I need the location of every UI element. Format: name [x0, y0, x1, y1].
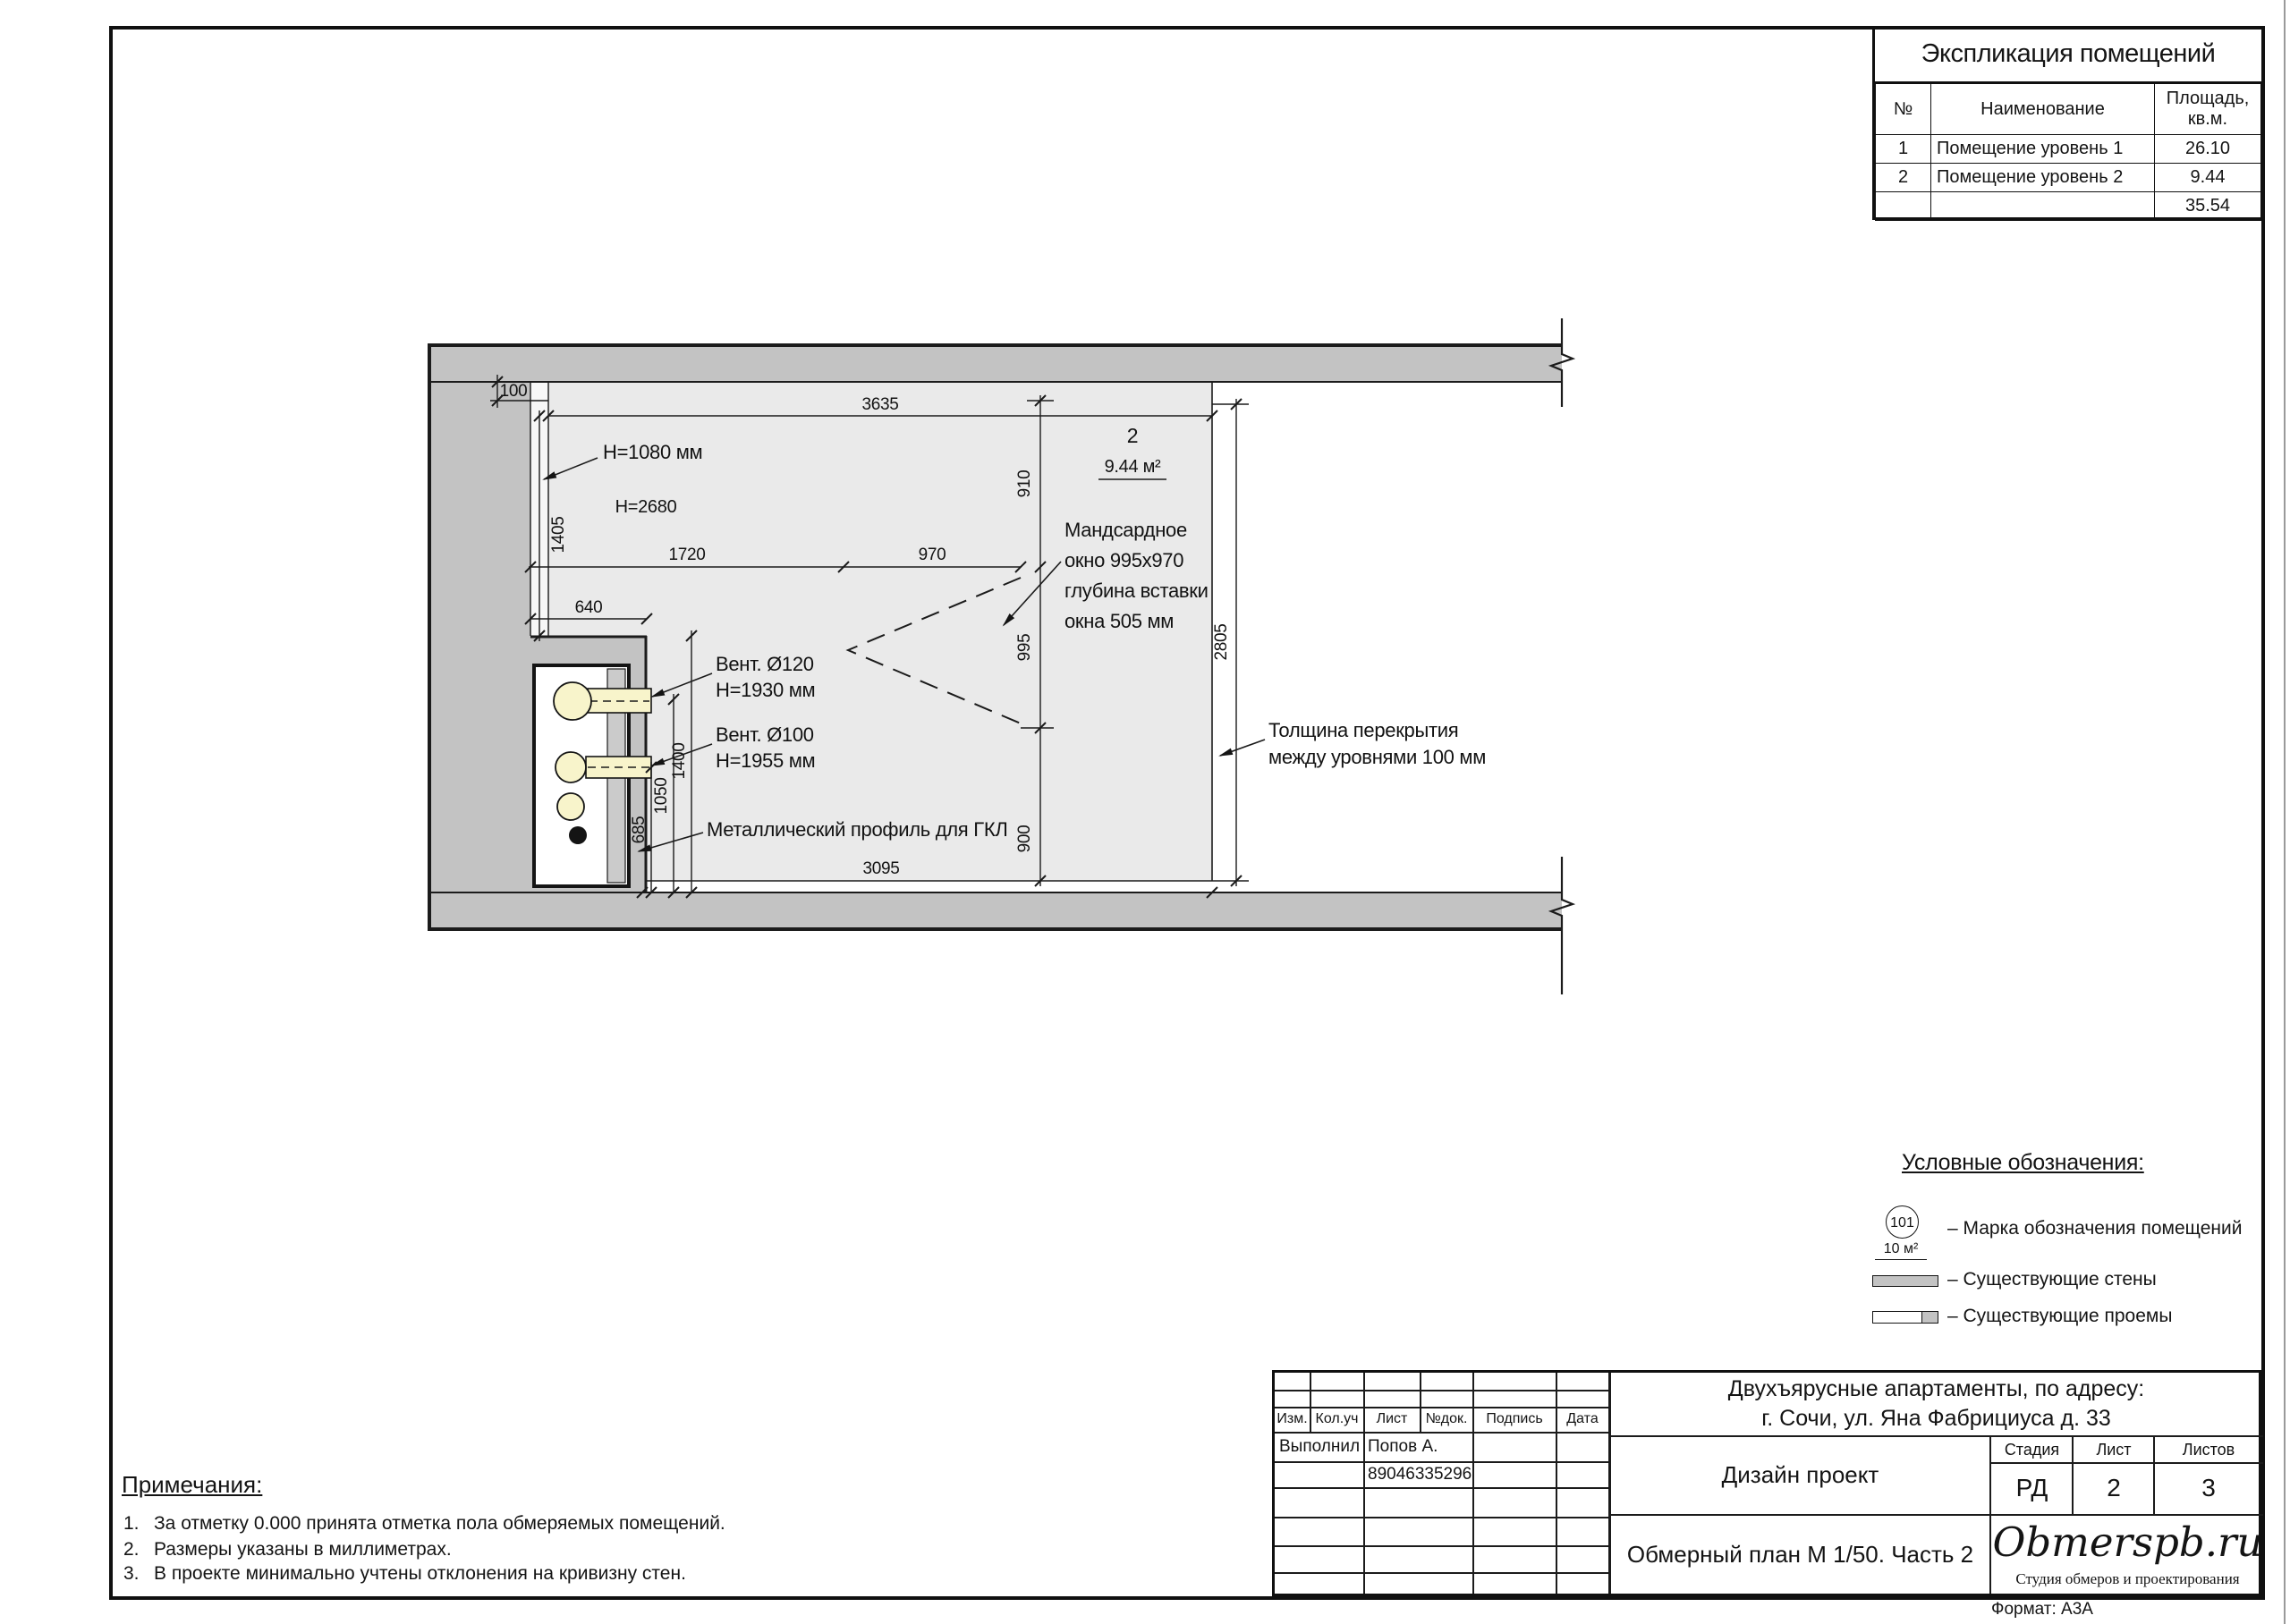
legend-opening-swatch-end [1921, 1312, 1938, 1323]
note-number: 2. [123, 1539, 140, 1561]
legend-item-walls: – Существующие стены [1947, 1269, 2157, 1290]
col-no: № [1876, 84, 1931, 135]
col-area-line2: кв.м. [2188, 109, 2227, 129]
row2-name: Помещение уровень 2 [1931, 164, 2155, 192]
header-izm: Изм. [1275, 1407, 1310, 1432]
header-data: Дата [1556, 1407, 1608, 1432]
room-marker-number: 2 [1127, 424, 1139, 447]
dim-970: 970 [919, 546, 946, 564]
legend-item-marker: – Марка обозначения помещений [1947, 1218, 2242, 1239]
vent-duct-100 [556, 752, 586, 782]
executor-name: Попов А. [1368, 1432, 1472, 1461]
vent-duct-small [557, 793, 584, 820]
role-vypolnil: Выполнил [1279, 1432, 1363, 1461]
label-h1080: H=1080 мм [603, 441, 702, 463]
legend-title: Условные обозначения: [1902, 1150, 2144, 1176]
header-list: Лист [1364, 1407, 1420, 1432]
format-label: Формат: А3А [1991, 1600, 2093, 1620]
slab-label-1: Толщина перекрытия [1268, 719, 1458, 741]
legend-opening-swatch [1872, 1311, 1938, 1324]
wall-left [431, 382, 530, 892]
pipe-riser [569, 826, 587, 844]
dim-995: 995 [1015, 634, 1034, 662]
row2-no: 2 [1876, 164, 1931, 192]
table-row: 1 Помещение уровень 1 26.10 [1876, 135, 2261, 164]
window-label-1: Мандсардное [1064, 519, 1187, 541]
doc-type: Дизайн проект [1611, 1437, 1989, 1512]
dim-910: 910 [1015, 470, 1034, 498]
sheet-value: 2 [2074, 1463, 2153, 1513]
note-item: В проекте минимально учтены отклонения н… [154, 1563, 686, 1585]
col-area: Площадь,кв.м. [2155, 84, 2261, 135]
executor-phone: 89046335296 [1368, 1461, 1472, 1487]
walls [428, 318, 1573, 994]
legend-room-marker-area: 10 м² [1875, 1241, 1927, 1260]
row1-area: 26.10 [2155, 135, 2261, 164]
dim-3095: 3095 [862, 859, 899, 878]
slab-label-2: между уровнями 100 мм [1268, 746, 1486, 768]
notes-title: Примечания: [122, 1471, 262, 1499]
doc-name: Обмерный план М 1/50. Часть 2 [1611, 1517, 1989, 1593]
stage-value: РД [1992, 1463, 2072, 1513]
logo: Obmerspb.ru [1992, 1516, 2263, 1568]
header-podpis: Подпись [1473, 1407, 1556, 1432]
explication-header-row: № Наименование Площадь,кв.м. [1876, 84, 2261, 135]
gkl-profile-label: Металлический профиль для ГКЛ [707, 818, 1007, 841]
window-label-2: окно 995х970 [1064, 549, 1183, 571]
project-address-line2: г. Сочи, ул. Яна Фабрициуса д. 33 [1609, 1404, 2263, 1434]
note-number: 1. [123, 1513, 140, 1535]
vent120-label: Вент. Ø120 [716, 653, 814, 675]
table-row-total: 35.54 [1876, 192, 2261, 221]
row1-name: Помещение уровень 1 [1931, 135, 2155, 164]
sheets-value: 3 [2156, 1463, 2261, 1513]
total-area: 35.54 [2155, 192, 2261, 221]
dim-2805: 2805 [1212, 623, 1231, 660]
dim-685: 685 [630, 816, 649, 844]
dim-900: 900 [1015, 825, 1034, 853]
explication-title: Экспликация помещений [1875, 26, 2261, 83]
header-ndok: №док. [1421, 1407, 1472, 1432]
col-area-line1: Площадь, [2167, 89, 2250, 108]
vent-duct-120 [554, 682, 591, 720]
explication-table: Экспликация помещений № Наименование Пло… [1872, 26, 2261, 220]
vent120-height: H=1930 мм [716, 679, 815, 701]
window-label-4: окна 505 мм [1064, 610, 1174, 632]
sheets-label: Листов [2156, 1437, 2261, 1462]
col-name: Наименование [1931, 84, 2155, 135]
dim-3635: 3635 [861, 395, 898, 414]
wall-bottom [431, 892, 1562, 927]
legend-room-marker-circle: 101 [1886, 1205, 1919, 1239]
row2-area: 9.44 [2155, 164, 2261, 192]
row1-no: 1 [1876, 135, 1931, 164]
dim-1720: 1720 [668, 546, 705, 564]
stage-label: Стадия [1992, 1437, 2072, 1462]
project-address-line1: Двухъярусные апартаменты, по адресу: [1609, 1374, 2263, 1404]
vent100-label: Вент. Ø100 [716, 723, 814, 746]
table-row: 2 Помещение уровень 2 9.44 [1876, 164, 2261, 192]
window-label-3: глубина вставки [1064, 579, 1209, 602]
title-block: Изм. Кол.уч Лист №док. Подпись Дата Выпо… [1272, 1370, 2261, 1596]
note-number: 3. [123, 1563, 140, 1585]
dim-1400: 1400 [670, 742, 689, 779]
logo-subtitle: Студия обмеров и проектирования [1992, 1568, 2263, 1591]
room-area: 9.44 м² [1105, 457, 1161, 477]
wall-top [431, 345, 1562, 382]
header-koluch: Кол.уч [1310, 1407, 1363, 1432]
dim-1405: 1405 [549, 516, 568, 553]
dim-640: 640 [575, 598, 603, 617]
dim-100: 100 [500, 382, 528, 401]
label-h2680: H=2680 [615, 497, 677, 517]
note-item: Размеры указаны в миллиметрах. [154, 1539, 452, 1561]
legend-item-openings: – Существующие проемы [1947, 1306, 2172, 1327]
legend-wall-swatch [1872, 1275, 1938, 1287]
dim-1050: 1050 [652, 777, 671, 814]
sheet-label: Лист [2074, 1437, 2153, 1462]
vent100-height: H=1955 мм [716, 749, 815, 772]
note-item: За отметку 0.000 принята отметка пола об… [154, 1513, 725, 1535]
